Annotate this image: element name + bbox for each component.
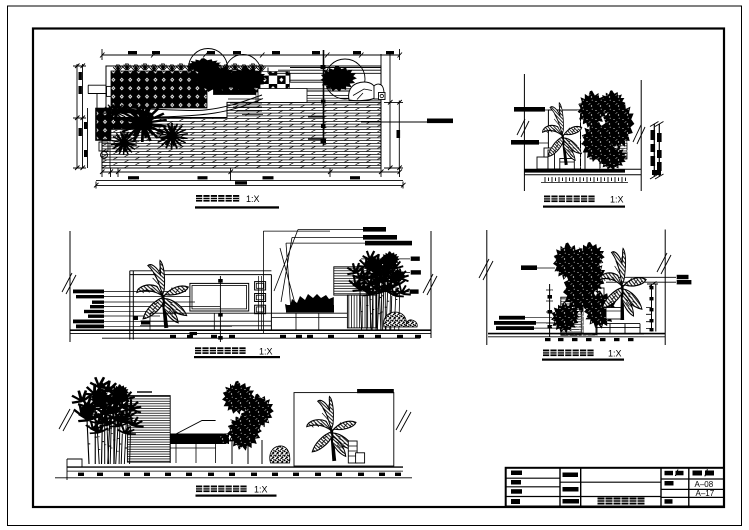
svg-text:1:X: 1:X (259, 346, 273, 356)
svg-text:1:X: 1:X (254, 485, 268, 495)
svg-text:1:X: 1:X (608, 349, 622, 359)
svg-text:1:X: 1:X (610, 195, 624, 205)
svg-text:A–08: A–08 (695, 480, 714, 489)
svg-text:A–17: A–17 (696, 489, 715, 498)
svg-text:1:X: 1:X (246, 194, 260, 204)
